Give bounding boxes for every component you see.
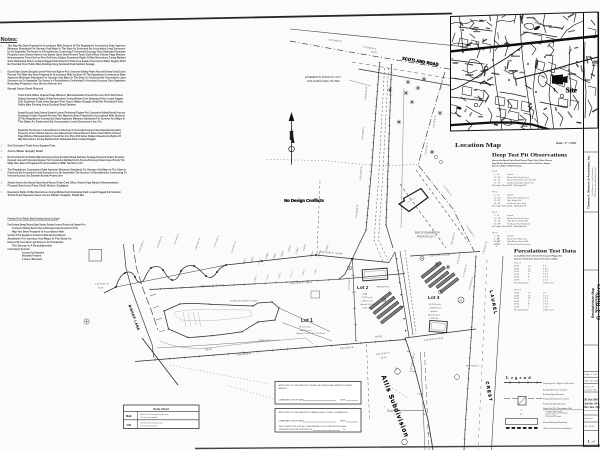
svg-text:APPROVED BY THE WINDSOR INLAND: APPROVED BY THE WINDSOR INLAND WETLANDS … <box>279 384 353 387</box>
svg-text:11": 11" <box>528 295 531 297</box>
svg-text:Existing Elevation Contour: Existing Elevation Contour <box>543 388 568 391</box>
svg-text:1.: 1. <box>1 182 3 185</box>
svg-text:Upland:: Upland: <box>430 311 438 313</box>
svg-text:The State As Endorsed By Assoc: The State As Endorsed By Association Lan… <box>18 120 102 124</box>
svg-text:10:19: 10:19 <box>514 274 520 276</box>
svg-text:Construction Building Permits: Construction Building Permits Proposed D… <box>12 227 79 230</box>
svg-text:Soil Scientist Total Area Squa: Soil Scientist Total Area Square Feet <box>8 144 56 148</box>
svg-text:1' 5.2": 1' 5.2" <box>543 280 549 282</box>
svg-text:11": 11" <box>528 268 531 270</box>
svg-text:TP #4: TP #4 <box>492 233 498 235</box>
svg-text:2 to 8 percent slopes: 2 to 8 percent slopes <box>140 416 158 419</box>
svg-text:Scale : 1" = 1000': Scale : 1" = 1000' <box>556 142 577 145</box>
svg-text:Location Map: Location Map <box>455 142 502 149</box>
svg-text:10 - 26": 10 - 26" <box>494 218 501 220</box>
svg-text:1.6612 acres: 1.6612 acres <box>361 300 375 303</box>
svg-text:1.: 1. <box>1 145 3 148</box>
svg-text:GRAVEL DRIVE: GRAVEL DRIVE <box>258 339 272 342</box>
svg-text:File : 04-118: File : 04-118 <box>585 426 595 428</box>
svg-text:Road Sanitary Sewage Disposal: Road Sanitary Sewage Disposal Septic Sys… <box>8 224 86 227</box>
svg-text:30 - 58": 30 - 58" <box>494 200 501 202</box>
svg-text:10:34: 10:34 <box>514 293 520 295</box>
svg-text:AGENCY: AGENCY <box>279 387 288 390</box>
svg-text:10 - 34": 10 - 34" <box>494 177 501 179</box>
svg-text:Total Area Square Feet Acres W: Total Area Square Feet Acres Water Suppl… <box>8 193 85 197</box>
svg-text:Boundary Property: Boundary Property <box>22 255 42 258</box>
svg-text:1.: 1. <box>1 156 3 159</box>
svg-text:Checked : TAS: Checked : TAS <box>585 389 598 392</box>
svg-text:Hereon Are Based Upon Deed Rec: Hereon Are Based Upon Deed Record Town C… <box>492 159 553 162</box>
svg-text:Scientist Total Area Square Fe: Scientist Total Area Square Feet Acres W… <box>514 257 558 260</box>
svg-text:2 to 8 percent slopes: 2 to 8 percent slopes <box>140 425 158 428</box>
svg-text:THE CONDITIONS FOR ALL THAT PA: THE CONDITIONS FOR ALL THAT PASSED FOR C… <box>279 425 348 428</box>
svg-text:1' 4.2": 1' 4.2" <box>543 304 549 306</box>
svg-text:G. J. Builders: G. J. Builders <box>597 284 600 320</box>
svg-text:TP #3: TP #3 <box>492 212 498 214</box>
svg-text:Thomas A. Stevens & Associates: Thomas A. Stevens & Associates, Inc. <box>587 155 591 209</box>
svg-text:Lines Shown: Lines Shown <box>22 259 43 261</box>
svg-text:Brown Fine Silty Loam: Brown Fine Silty Loam <box>507 237 527 240</box>
svg-text:8 - 24": 8 - 24" <box>494 238 500 240</box>
svg-text:20 Oct 2004: 20 Oct 2004 <box>584 398 599 402</box>
svg-text:Tan Brown Fine Sand: Tan Brown Fine Sand <box>507 203 526 205</box>
svg-text:7": 7" <box>528 307 530 309</box>
svg-text:58 - 86": 58 - 86" <box>494 244 501 246</box>
svg-text:DATE: DATE <box>340 399 346 402</box>
svg-text:26 - 60": 26 - 60" <box>494 221 501 223</box>
svg-text:No Ledge, Water At 62", Mottli: No Ledge, Water At 62", Mottling At 50" <box>492 184 527 187</box>
svg-text:FOR ACCESS AND UTILITIES: FOR ACCESS AND UTILITIES <box>307 80 340 83</box>
svg-text:1' 2.5": 1' 2.5" <box>543 268 549 270</box>
svg-text:Date : Oct. 2004: Date : Oct. 2004 <box>585 379 599 382</box>
svg-text:10:04: 10:04 <box>514 266 520 268</box>
svg-text:SEE NOTE 4: SEE NOTE 4 <box>466 366 480 368</box>
svg-text:Deep Test Pit Observations: Deep Test Pit Observations <box>492 153 567 159</box>
svg-text:1.: 1. <box>1 71 3 74</box>
svg-text:1' 2.2": 1' 2.2" <box>543 295 549 297</box>
svg-text:Lot 2: Lot 2 <box>357 285 369 291</box>
svg-text:10:39: 10:39 <box>514 295 520 297</box>
svg-text:10": 10" <box>528 271 531 273</box>
svg-text:58 - 84": 58 - 84" <box>494 203 501 205</box>
svg-text:Page Windsor Monumentation Fou: Page Windsor Monumentation Found Set Iro… <box>492 162 550 165</box>
svg-text:Deep Test Pit / Percolation Te: Deep Test Pit / Percolation Test <box>543 407 572 410</box>
svg-text:EASEMENT IN FAVOR OF LOT 2: EASEMENT IN FAVOR OF LOT 2 <box>305 76 342 79</box>
svg-text:Job No. 04-118: Job No. 04-118 <box>584 401 600 405</box>
svg-text:0' 6": 0' 6" <box>543 266 547 268</box>
svg-text:Map Has Been Prepared In Accor: Map Has Been Prepared In Accordance With <box>12 231 65 234</box>
svg-text:Way Restrictions Zoning Wetlan: Way Restrictions Zoning Wetland Soils De… <box>18 137 96 141</box>
svg-text:0 - 12": 0 - 12" <box>494 195 500 197</box>
svg-text:10:49: 10:49 <box>514 301 520 303</box>
svg-text:TP #1: TP #1 <box>492 171 498 173</box>
svg-text:Cheshire Fine Sandy Loam: Cheshire Fine Sandy Loam <box>140 422 163 425</box>
svg-text:24 - 58": 24 - 58" <box>494 241 501 243</box>
svg-text:Lot 3: Lot 3 <box>428 295 440 301</box>
svg-text:Notes:: Notes: <box>1 37 19 43</box>
svg-text:10:29: 10:29 <box>514 280 520 282</box>
svg-text:No Ledge, Water At 66", Mottli: No Ledge, Water At 66", Mottling At 54" <box>492 225 527 228</box>
svg-text:1 Min / Inch: 1 Min / Inch <box>543 282 553 284</box>
svg-text:7": 7" <box>528 280 530 282</box>
svg-text:Tan Brown Sand w/Gravel: Tan Brown Sand w/Gravel <box>507 223 531 225</box>
svg-text:10:09: 10:09 <box>514 268 520 270</box>
svg-text:Legend: Legend <box>506 375 533 380</box>
svg-text:12": 12" <box>528 293 531 295</box>
svg-text:1.8659 acres: 1.8659 acres <box>429 307 443 310</box>
svg-text:Standards For Surveys And Maps: Standards For Surveys And Maps In The St… <box>8 238 73 241</box>
svg-text:Topsoil: Topsoil <box>507 195 514 197</box>
svg-text:Upland: 74,347 SF, 1.7076 Ac: Upland: 74,347 SF, 1.7076 Ac <box>296 332 326 335</box>
svg-text:Existing Spot Elevation: Existing Spot Elevation <box>543 393 565 396</box>
svg-text:SUBDIVISION WORK EXPIRES ON: SUBDIVISION WORK EXPIRES ON <box>279 429 313 431</box>
svg-text:Topsoil: Topsoil <box>507 215 514 217</box>
svg-text:Brown Fine Silt/Loam m Tan SM: Brown Fine Silt/Loam m Tan SM <box>507 179 536 182</box>
svg-text:Light Brown Sand w/Silt: Light Brown Sand w/Silt <box>507 240 529 243</box>
svg-text:Tan Brown Sand w/Gravel: Tan Brown Sand w/Gravel <box>507 244 531 246</box>
svg-text:No Ledge, Water At 64", Mottli: No Ledge, Water At 64", Mottling At 52" <box>492 205 527 208</box>
svg-text:Boundary Property Lines Shown: Boundary Property Lines Shown Hereon Are <box>8 82 63 86</box>
svg-text:1.: 1. <box>1 45 3 48</box>
svg-text:Property Line / Right Of Way L: Property Line / Right Of Way Line <box>543 382 575 385</box>
svg-text:Percolation Test Data: Percolation Test Data <box>514 249 577 255</box>
svg-text:Horizontal Accuracy Class Depe: Horizontal Accuracy Class Dependent Boun… <box>8 174 63 178</box>
svg-text:Lgt Brown Medium Sand m Gr: Lgt Brown Medium Sand m Gr <box>507 181 534 184</box>
svg-text:Endorsed By Association Land S: Endorsed By Association Land Surveyors I… <box>8 241 64 244</box>
svg-text:12": 12" <box>528 266 531 268</box>
svg-text:Topsoil: Topsoil <box>507 174 514 176</box>
svg-text:52 - 72": 52 - 72" <box>494 182 501 184</box>
svg-text:12 - 30": 12 - 30" <box>494 197 501 199</box>
svg-text:Easements Rights Of Way Restri: Easements Rights Of Way Restrictions <box>492 165 523 168</box>
svg-text:1' 5.0": 1' 5.0" <box>543 307 549 309</box>
svg-text:81,363 sq.ft.: 81,363 sq.ft. <box>429 303 441 306</box>
svg-text:CHAIRMAN / SECRETARY: CHAIRMAN / SECRETARY <box>279 420 305 423</box>
svg-text:1 Min / Inch: 1 Min / Inch <box>543 309 553 311</box>
svg-text:10:44: 10:44 <box>514 298 520 300</box>
svg-text:Topsoil: Topsoil <box>507 236 514 238</box>
svg-text:Light Brown Silt: Light Brown Silt <box>507 199 521 202</box>
svg-text:0 - 10": 0 - 10" <box>494 215 500 217</box>
svg-text:0' 5": 0' 5" <box>543 293 547 295</box>
svg-text:CHAIRMAN / SECRETARY: CHAIRMAN / SECRETARY <box>279 399 305 402</box>
svg-text:72,365 sq.ft.: 72,365 sq.ft. <box>361 296 373 299</box>
svg-text:0 - 8": 0 - 8" <box>494 236 499 238</box>
svg-text:0 - 10": 0 - 10" <box>494 174 500 176</box>
svg-text:Brown Fine Sandy Loam: Brown Fine Sandy Loam <box>507 177 529 179</box>
svg-text:9": 9" <box>528 274 530 276</box>
svg-text:Based Upon Deed Record: Based Upon Deed Record <box>8 87 44 91</box>
svg-text:1.: 1. <box>1 169 3 172</box>
svg-text:1: 1 <box>588 440 590 444</box>
svg-text:10:54: 10:54 <box>514 304 520 306</box>
svg-text:Approved :: Approved : <box>585 417 594 420</box>
svg-text:Perc #2: Perc #2 <box>514 290 522 292</box>
svg-text:60 - 88": 60 - 88" <box>494 223 501 225</box>
svg-text:Acres Water Supply Shall: Acres Water Supply Shall <box>8 149 43 153</box>
svg-text:Percolation Rate: Percolation Rate <box>514 308 530 311</box>
svg-text:Proposed Spot Elevation: Proposed Spot Elevation <box>543 402 567 405</box>
svg-text:1.: 1. <box>1 191 3 194</box>
svg-text:66,255 sq.ft.: 66,255 sq.ft. <box>428 314 440 317</box>
svg-text:Rev. Nov. 2004: Rev. Nov. 2004 <box>584 406 600 409</box>
svg-text:END OF EASEMENT IN: END OF EASEMENT IN <box>415 232 440 235</box>
svg-text:APPROVED BY THE WINDSOR PLANNI: APPROVED BY THE WINDSOR PLANNING AND ZON… <box>279 411 349 414</box>
svg-text:Accuracy Class Dependent: Accuracy Class Dependent <box>22 252 44 255</box>
svg-text:10:24: 10:24 <box>514 277 520 279</box>
svg-text:10": 10" <box>528 298 531 300</box>
svg-text:TP #2: TP #2 <box>492 192 498 194</box>
svg-text:9": 9" <box>528 301 530 303</box>
svg-text:SEE NOTE 5: SEE NOTE 5 <box>377 287 391 289</box>
svg-text:Sections Of The Regulations Co: Sections Of The Regulations Connecticut … <box>8 234 66 237</box>
svg-text:Manchester Gravelly Sandy Loam: Manchester Gravelly Sandy Loam <box>140 413 169 416</box>
svg-text:Inland Wetlands Boundary: Inland Wetlands Boundary <box>543 421 568 424</box>
svg-text:125 Durham Road Madison, Con: 125 Durham Road Madison, Conn. <box>595 166 597 197</box>
svg-text:34 - 52": 34 - 52" <box>494 180 501 182</box>
svg-text:Zoning Wetland Soils Delineate: Zoning Wetland Soils Delineated Field Lo… <box>514 255 562 258</box>
svg-text:1' 3.2": 1' 3.2" <box>543 271 549 273</box>
svg-text:10:59: 10:59 <box>514 307 520 309</box>
svg-text:INLAND WETLANDS (TYPICAL): INLAND WETLANDS (TYPICAL) <box>230 300 258 303</box>
svg-text:CtB: CtB <box>127 423 132 427</box>
svg-text:85.00': 85.00' <box>98 287 104 289</box>
svg-text:81,347 sq.ft.: 81,347 sq.ft. <box>299 326 311 329</box>
svg-text:No Design Conflicts: No Design Conflicts <box>284 198 324 203</box>
svg-text:Percolation Rate: Percolation Rate <box>514 281 530 284</box>
svg-text:10:14: 10:14 <box>514 271 520 273</box>
svg-text:S 16°28'30" W: S 16°28'30" W <box>95 284 108 286</box>
svg-text:Site: Site <box>566 87 577 95</box>
svg-text:#34A: #34A <box>362 293 368 296</box>
svg-text:Conforming To Horizontal: Conforming To Horizontal <box>8 248 30 251</box>
svg-text:FAVOR OF LOT 2: FAVOR OF LOT 2 <box>417 236 436 239</box>
svg-text:8": 8" <box>528 304 530 306</box>
svg-text:The Survey Is A Resubdivision: The Survey Is A Resubdivision <box>12 245 53 248</box>
svg-text:1.5211 Ac: 1.5211 Ac <box>429 317 439 320</box>
svg-text:4 x: 4 x <box>520 414 523 416</box>
svg-text:8": 8" <box>528 277 530 279</box>
svg-text:1' 4.0": 1' 4.0" <box>543 274 549 276</box>
svg-text:Light Brown Sand w/Silt: Light Brown Sand w/Silt <box>507 220 529 223</box>
svg-text:1.: 1. <box>1 150 3 153</box>
svg-text:Perc #1: Perc #1 <box>514 263 522 265</box>
svg-text:DATE: DATE <box>340 420 346 423</box>
svg-text:Scale : 1" = 40': Scale : 1" = 40' <box>585 374 598 376</box>
svg-text:Proposed Elevation Contour: Proposed Elevation Contour <box>543 398 569 401</box>
svg-text:Found Set Iron Pins Drill Hole: Found Set Iron Pins Drill Holes Subject <box>8 184 69 188</box>
svg-text:1' 3.7": 1' 3.7" <box>543 301 549 303</box>
svg-text:1' 4.5": 1' 4.5" <box>543 277 549 279</box>
svg-text:Brown Fine Sandy Loam: Brown Fine Sandy Loam <box>507 197 529 199</box>
svg-text:Public Main Existing Along Sco: Public Main Existing Along Scotland Road… <box>18 102 76 106</box>
svg-text:MaB: MaB <box>126 414 132 418</box>
svg-text:1' 3.0": 1' 3.0" <box>543 298 549 300</box>
svg-text:Be Provided From Public Main E: Be Provided From Public Main Existing Al… <box>8 62 96 66</box>
svg-text:Soils Chart: Soils Chart <box>153 407 169 411</box>
svg-text:Other Parcel Easement Marker: Other Parcel Easement Marker <box>543 427 572 430</box>
svg-text:Drawn : JW: Drawn : JW <box>585 386 595 388</box>
svg-text:Provided From Public Main Exis: Provided From Public Main Existing Along… <box>8 218 60 221</box>
svg-text:Map Has Been Prepared In Accor: Map Has Been Prepared In Accordance With… <box>8 161 83 165</box>
svg-text:Brown Fine Sandy Loam: Brown Fine Sandy Loam <box>507 218 529 220</box>
